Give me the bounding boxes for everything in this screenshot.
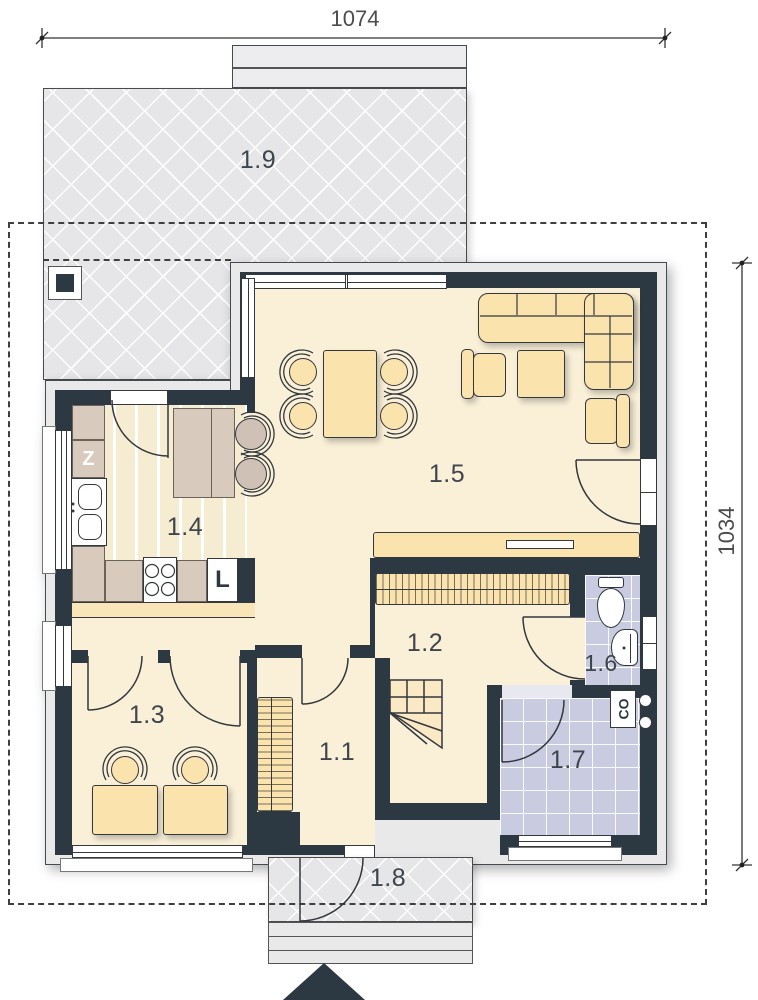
floor-plan: Z L [0, 0, 758, 1000]
room-label-utility: 1.7 [538, 746, 598, 775]
room-label-living: 1.5 [417, 460, 477, 489]
dimension-label-top: 1074 [295, 6, 415, 32]
room-label-kitchen: 1.4 [155, 513, 215, 542]
room-label-vestibule: 1.1 [307, 738, 367, 767]
room-label-terrace: 1.9 [228, 146, 288, 175]
room-label-hall: 1.2 [395, 629, 455, 658]
room-label-room13: 1.3 [117, 701, 177, 730]
roof-edge-dashed-segment [43, 259, 231, 261]
roof-outline-dashed [8, 222, 707, 905]
entry-steps [268, 922, 473, 964]
dimension-label-right: 1034 [714, 479, 740, 583]
entrance-arrow [283, 963, 365, 1000]
room-label-bathroom: 1.6 [571, 650, 631, 677]
room-label-porch: 1.8 [358, 864, 418, 893]
